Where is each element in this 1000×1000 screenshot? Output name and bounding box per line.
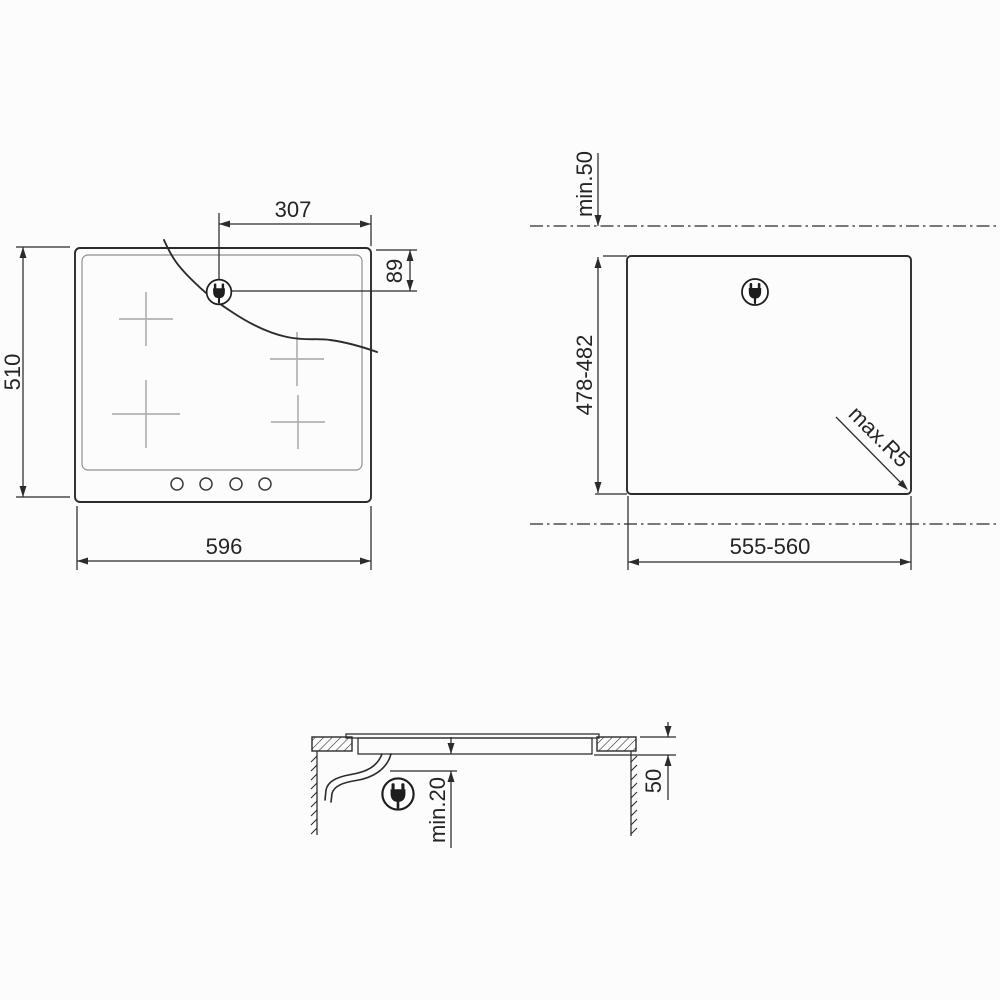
- installation-diagram: 307 89 510 596: [0, 0, 1000, 1000]
- control-knob: [259, 478, 271, 490]
- control-knob: [230, 478, 242, 490]
- dimension-label-478-482: 478-482: [572, 335, 597, 416]
- hob-top-view: 307 89 510 596: [0, 197, 417, 570]
- control-knob: [200, 478, 212, 490]
- cabinet-wall-left: [311, 751, 317, 835]
- dimension-label-510: 510: [0, 354, 25, 391]
- control-knob: [171, 478, 183, 490]
- worktop-section-left: [312, 737, 352, 751]
- dimension-label-555-560: 555-560: [730, 534, 811, 559]
- worktop-section-right: [597, 737, 636, 751]
- dimension-label-596: 596: [206, 534, 243, 559]
- dimension-rear-clearance: min.50: [572, 151, 602, 226]
- power-plug-icon: [382, 778, 413, 809]
- dimension-hob-depth: 510: [0, 247, 70, 497]
- dimension-label-50: 50: [641, 769, 666, 793]
- dimension-hob-width: 596: [77, 506, 371, 570]
- dimension-worktop-thickness: 50: [594, 722, 676, 800]
- worktop-section-view: min.20 50: [311, 722, 676, 848]
- dimension-corner-radius: max.R5: [836, 401, 915, 490]
- burner-cross-front-right: [271, 395, 325, 449]
- dimension-label-89: 89: [382, 259, 407, 283]
- dimension-plug-offset-y: 89: [376, 250, 417, 291]
- dimension-cutout-depth: 478-482: [572, 256, 627, 494]
- hob-body-section: [358, 738, 592, 754]
- dimension-label-307: 307: [275, 197, 312, 222]
- cutout-outline: [627, 256, 911, 494]
- power-plug-icon: [207, 280, 232, 305]
- dimension-label-min20: min.20: [425, 777, 450, 843]
- power-plug-icon: [742, 279, 768, 305]
- dimension-plug-offset-x: 307: [219, 197, 371, 246]
- dimension-cutout-width: 555-560: [628, 496, 911, 570]
- cabinet-wall-right: [631, 751, 637, 836]
- diagram-svg: 307 89 510 596: [0, 0, 1000, 1000]
- break-line-curve: [164, 240, 377, 352]
- worktop-cutout-view: min.50 478-482 max.R5 555-560: [530, 151, 999, 570]
- burner-cross-front-left: [112, 380, 180, 448]
- power-cable: [325, 754, 382, 800]
- burner-cross-rear-left: [119, 292, 173, 346]
- dimension-label-min50: min.50: [572, 151, 597, 217]
